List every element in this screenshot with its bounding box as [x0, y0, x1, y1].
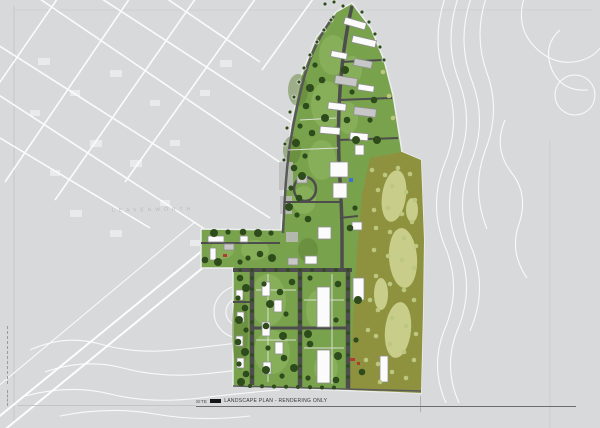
sheet-tick-mark	[420, 396, 421, 412]
margin-microtext	[7, 326, 8, 384]
red-mark	[350, 358, 355, 361]
scale-bar-icon	[210, 399, 221, 403]
caption-rule-extension	[18, 405, 196, 406]
drawing-caption: SITE LANDSCAPE PLAN - RENDERING ONLY	[196, 398, 327, 404]
caption-label: LANDSCAPE PLAN - RENDERING ONLY	[224, 398, 327, 404]
margin-microtext	[7, 390, 8, 406]
caption-keynote: SITE	[196, 399, 207, 404]
red-mark	[357, 362, 360, 365]
red-mark	[223, 254, 227, 257]
blue-mark	[349, 178, 353, 182]
caption-rule	[196, 406, 576, 407]
drawing-sheet: LEAVENWORTH	[0, 0, 600, 428]
landscape-plan	[0, 0, 600, 428]
